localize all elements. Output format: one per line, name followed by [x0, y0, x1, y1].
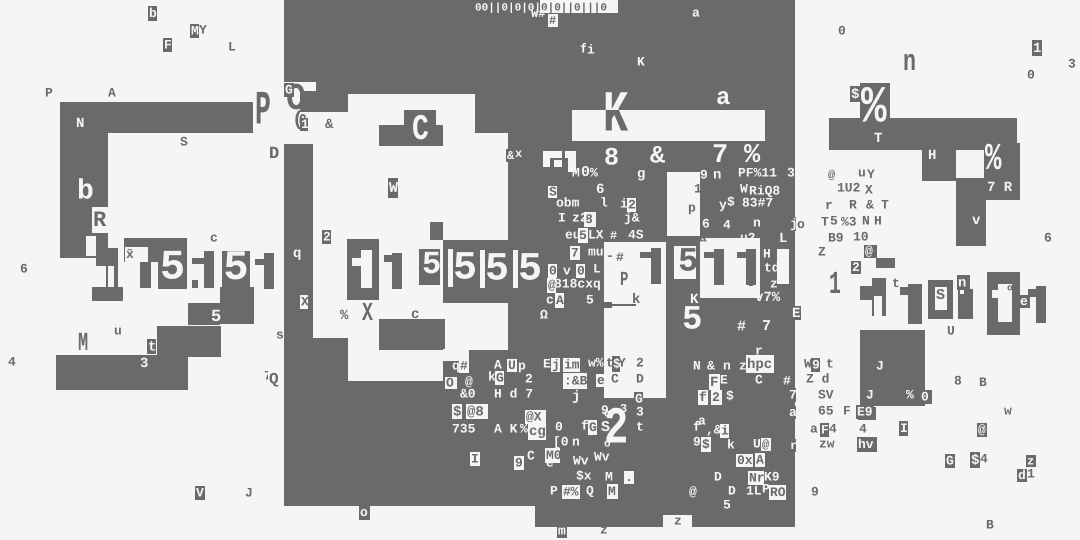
svg-text:&0: &0: [460, 387, 476, 402]
svg-text:E: E: [792, 306, 800, 322]
svg-text:W: W: [389, 180, 398, 197]
svg-text:3: 3: [787, 166, 795, 181]
svg-text:&: &: [507, 149, 515, 163]
svg-text:1: 1: [301, 117, 309, 132]
svg-text:RO: RO: [770, 485, 786, 500]
svg-text:r: r: [825, 198, 833, 213]
svg-text:Y: Y: [199, 23, 207, 38]
svg-text:W#: W#: [531, 7, 545, 21]
svg-text:7: 7: [762, 318, 771, 335]
svg-text:G: G: [285, 83, 293, 98]
svg-text:td: td: [764, 261, 780, 276]
svg-text:p: p: [688, 201, 696, 216]
svg-text:Wv: Wv: [573, 454, 589, 469]
svg-text:d: d: [1018, 468, 1026, 483]
svg-text:@: @: [828, 168, 835, 182]
svg-text:i: i: [587, 43, 595, 58]
svg-text:1: 1: [829, 266, 841, 303]
svg-text:Z d: Z d: [806, 372, 829, 387]
svg-text:cg: cg: [529, 424, 546, 440]
svg-text:5: 5: [485, 247, 509, 292]
svg-text:Q: Q: [269, 371, 279, 389]
svg-text:o: o: [604, 438, 611, 450]
svg-text:H: H: [874, 214, 882, 229]
svg-text:I: I: [558, 211, 566, 226]
svg-text:K: K: [637, 55, 645, 70]
svg-text:u: u: [114, 324, 122, 339]
svg-text:7: 7: [571, 246, 579, 261]
svg-text:b: b: [149, 6, 157, 21]
svg-text:i: i: [620, 197, 628, 212]
svg-text:2: 2: [852, 260, 860, 275]
svg-text:e: e: [597, 373, 605, 388]
svg-text:n: n: [903, 46, 916, 80]
svg-text:5: 5: [453, 246, 477, 291]
svg-text:L: L: [228, 40, 236, 55]
svg-text:5: 5: [518, 247, 542, 292]
svg-text:Wv: Wv: [594, 450, 610, 465]
svg-text:4: 4: [859, 422, 867, 437]
svg-text:j: j: [552, 358, 560, 373]
svg-text:@: @: [762, 438, 769, 452]
svg-text:@: @: [689, 485, 697, 500]
svg-text:3: 3: [1068, 57, 1076, 72]
svg-text:F: F: [843, 404, 851, 419]
svg-text:k: k: [727, 438, 735, 453]
svg-text:a: a: [810, 422, 818, 437]
svg-text:W: W: [804, 357, 812, 372]
svg-text:b: b: [77, 177, 94, 208]
svg-text:&: &: [650, 142, 665, 171]
svg-text:M: M: [191, 24, 199, 39]
svg-text:G: G: [946, 454, 954, 469]
svg-text:j&: j&: [624, 211, 640, 226]
svg-text:P: P: [762, 482, 770, 497]
svg-text:A: A: [494, 358, 502, 373]
svg-text:$: $: [971, 453, 979, 469]
svg-text:9: 9: [812, 358, 820, 373]
svg-text:k: k: [632, 292, 640, 308]
svg-text:4: 4: [8, 355, 16, 370]
svg-text:#: #: [783, 374, 791, 389]
svg-text:S: S: [601, 419, 610, 436]
svg-text:J: J: [866, 388, 874, 403]
svg-text:X: X: [362, 298, 373, 328]
svg-text:10: 10: [853, 230, 869, 245]
svg-text:c: c: [210, 231, 218, 246]
svg-text:c: c: [411, 307, 419, 323]
svg-text:#: #: [549, 14, 556, 28]
svg-text:3: 3: [140, 356, 148, 372]
svg-text:5: 5: [682, 301, 702, 339]
svg-text:5: 5: [160, 243, 185, 291]
svg-text:83#7: 83#7: [742, 196, 773, 211]
svg-text:%: %: [520, 422, 528, 437]
svg-text:$x: $x: [576, 469, 592, 484]
svg-text:%3: %3: [841, 215, 857, 230]
svg-text:4: 4: [829, 422, 837, 437]
svg-text:5: 5: [586, 293, 594, 308]
svg-text:Z: Z: [818, 245, 826, 260]
svg-text:S: S: [936, 287, 945, 304]
svg-text:v: v: [972, 213, 981, 229]
svg-text:9: 9: [700, 168, 708, 183]
svg-text:%: %: [340, 308, 349, 324]
svg-text:@: @: [865, 244, 873, 259]
svg-text:5: 5: [579, 228, 587, 243]
svg-text:F: F: [821, 423, 829, 438]
svg-text:2: 2: [525, 372, 533, 387]
svg-text:W: W: [740, 182, 748, 197]
svg-text:z: z: [572, 211, 580, 226]
svg-text:e: e: [546, 456, 554, 471]
svg-text:T: T: [881, 198, 889, 213]
svg-text:$: $: [702, 437, 710, 452]
svg-text:E: E: [720, 373, 728, 388]
svg-text:E: E: [543, 357, 551, 372]
svg-text:q: q: [452, 359, 460, 374]
svg-text:y: y: [719, 198, 727, 213]
svg-text:5: 5: [678, 243, 698, 281]
svg-text:L: L: [779, 231, 787, 247]
svg-text:@: @: [978, 423, 986, 438]
svg-text:I: I: [471, 452, 479, 467]
svg-text::&B: :&B: [564, 374, 588, 389]
svg-text:n: n: [572, 435, 580, 450]
svg-text:Y: Y: [618, 356, 626, 371]
svg-text:C: C: [611, 372, 619, 387]
svg-text:q: q: [293, 246, 301, 262]
svg-text:4S: 4S: [628, 228, 644, 243]
svg-text:t: t: [892, 276, 900, 291]
svg-text:H: H: [763, 247, 771, 262]
svg-text:c: c: [546, 293, 554, 308]
svg-text:C: C: [412, 109, 429, 150]
svg-text:j: j: [572, 389, 580, 405]
svg-text:m: m: [558, 524, 566, 539]
svg-text:C: C: [527, 449, 535, 464]
svg-text:4: 4: [980, 452, 988, 467]
svg-text:735: 735: [452, 422, 476, 437]
svg-text:%: %: [590, 166, 598, 181]
svg-text:P: P: [255, 85, 271, 139]
svg-text:E9: E9: [857, 405, 873, 420]
svg-text:a: a: [716, 85, 730, 112]
svg-text:0|0||0|||0: 0|0||0|||0: [541, 2, 607, 14]
svg-text:x: x: [515, 147, 522, 161]
svg-text:T: T: [821, 215, 829, 230]
svg-text:N: N: [693, 359, 701, 374]
svg-text:n: n: [753, 216, 761, 231]
svg-text:u: u: [858, 166, 866, 181]
svg-text:-: -: [606, 249, 614, 264]
svg-text:x̃: x̃: [126, 247, 134, 262]
svg-text:B: B: [979, 375, 987, 390]
svg-text:P: P: [620, 269, 628, 292]
svg-text:0x: 0x: [737, 453, 753, 468]
svg-text:G: G: [589, 420, 597, 435]
svg-text:U: U: [508, 358, 516, 373]
svg-text:f: f: [699, 390, 707, 405]
svg-text:7: 7: [789, 388, 797, 403]
svg-text:e: e: [1020, 294, 1028, 309]
svg-text:z: z: [739, 359, 747, 374]
svg-text:P: P: [45, 86, 53, 101]
svg-text:º: º: [1006, 284, 1014, 299]
svg-text:2: 2: [712, 390, 720, 405]
svg-text:R: R: [93, 208, 107, 233]
svg-text:mu: mu: [588, 245, 604, 260]
svg-text:D: D: [714, 470, 722, 485]
svg-text:B: B: [986, 518, 994, 533]
svg-text:SV: SV: [818, 388, 834, 403]
svg-text:A: A: [556, 293, 564, 308]
svg-text:9: 9: [693, 435, 701, 450]
svg-text:D: D: [636, 372, 644, 387]
svg-text:4: 4: [723, 218, 731, 233]
svg-text:F: F: [164, 38, 172, 53]
svg-text:z: z: [600, 523, 608, 538]
svg-text:818cxq: 818cxq: [554, 277, 601, 292]
svg-text:U: U: [753, 437, 761, 452]
svg-text:#: #: [616, 250, 624, 265]
svg-text:z: z: [674, 514, 682, 529]
svg-text:Ω: Ω: [540, 308, 548, 323]
svg-text:9: 9: [515, 456, 523, 471]
svg-text:X: X: [301, 295, 309, 310]
svg-text:H d 7: H d 7: [494, 387, 533, 402]
svg-text:1: 1: [694, 182, 702, 197]
svg-text:#: #: [737, 319, 746, 336]
svg-text:N: N: [76, 116, 84, 132]
svg-text:a: a: [692, 6, 700, 21]
svg-text:7: 7: [712, 141, 728, 171]
svg-text:hpc: hpc: [747, 357, 772, 373]
svg-text:3: 3: [636, 405, 644, 420]
svg-text:M: M: [608, 484, 616, 499]
svg-text:o: o: [360, 505, 368, 520]
svg-text:$: $: [727, 195, 735, 210]
svg-text:t: t: [826, 357, 834, 372]
svg-text:A K: A K: [494, 422, 518, 437]
svg-text:i: i: [721, 424, 729, 439]
svg-text:B9: B9: [828, 231, 844, 246]
svg-text:n: n: [713, 167, 721, 183]
svg-text:R: R: [849, 198, 857, 213]
svg-text:D: D: [728, 484, 736, 499]
svg-text:t: t: [636, 420, 644, 435]
svg-text:5: 5: [223, 244, 248, 292]
svg-text:M: M: [78, 328, 88, 358]
svg-text:A: A: [756, 453, 764, 468]
svg-text:%: %: [861, 78, 887, 137]
svg-text:#%: #%: [563, 485, 579, 500]
svg-text:P: P: [550, 484, 558, 499]
svg-text:$: $: [453, 404, 461, 420]
svg-text:8: 8: [604, 144, 619, 173]
svg-text:&: &: [866, 198, 874, 213]
svg-text:.: .: [625, 470, 633, 485]
svg-text:PF%11: PF%11: [738, 166, 777, 181]
svg-text:1: 1: [1027, 467, 1035, 482]
svg-text:$: $: [726, 389, 734, 404]
svg-text:6: 6: [1044, 231, 1052, 246]
svg-text:J: J: [245, 486, 253, 501]
svg-text:5: 5: [830, 214, 838, 229]
svg-text:H: H: [928, 148, 936, 164]
svg-text:1L: 1L: [746, 484, 762, 499]
svg-text:n: n: [723, 359, 731, 374]
svg-text:65: 65: [818, 404, 834, 419]
svg-text:D: D: [269, 145, 279, 164]
svg-text:I: I: [900, 421, 908, 436]
svg-text:C: C: [755, 373, 763, 388]
svg-text:w: w: [1004, 404, 1012, 419]
svg-text:N: N: [862, 214, 870, 229]
svg-text:0: 0: [921, 390, 929, 405]
svg-text:f: f: [581, 419, 589, 434]
svg-text:o: o: [797, 217, 805, 232]
svg-text:l: l: [600, 196, 608, 211]
svg-text:0: 0: [838, 24, 846, 39]
svg-text:5: 5: [211, 308, 221, 327]
svg-text:7 R: 7 R: [987, 180, 1013, 196]
svg-text:8: 8: [954, 374, 962, 389]
svg-text:r: r: [790, 439, 797, 453]
svg-text:$: $: [851, 87, 859, 103]
svg-text:9: 9: [811, 485, 819, 500]
svg-text:F: F: [710, 375, 718, 391]
svg-text:a: a: [699, 231, 707, 246]
svg-text:zw: zw: [819, 437, 835, 452]
svg-text:M: M: [605, 470, 613, 485]
svg-text:5: 5: [422, 246, 441, 283]
svg-text:U: U: [947, 324, 955, 339]
svg-text:J: J: [876, 359, 884, 374]
svg-text:,&: ,&: [706, 423, 722, 438]
svg-text:a: a: [698, 414, 706, 429]
svg-text:5: 5: [723, 498, 731, 513]
svg-text:&: &: [325, 117, 334, 133]
svg-text:L: L: [593, 262, 601, 277]
svg-text:a: a: [789, 405, 797, 420]
svg-text:s: s: [276, 328, 284, 343]
svg-text:hv: hv: [858, 437, 874, 452]
svg-text:0: 0: [1027, 68, 1035, 83]
svg-text:LX: LX: [588, 228, 604, 243]
svg-text:im: im: [564, 358, 580, 373]
svg-text:@8: @8: [467, 404, 484, 420]
svg-text:#: #: [610, 229, 617, 243]
svg-text:Q: Q: [586, 484, 594, 499]
svg-text:1U2: 1U2: [837, 181, 861, 196]
svg-text:6: 6: [20, 262, 28, 277]
svg-text:S: S: [180, 135, 188, 150]
svg-text:%: %: [906, 388, 914, 403]
svg-text:#: #: [460, 359, 468, 374]
svg-text:u2: u2: [740, 231, 756, 246]
svg-text:v7%: v7%: [755, 290, 781, 306]
svg-text:M: M: [572, 166, 580, 181]
svg-text:&: &: [707, 359, 715, 374]
svg-text:%: %: [985, 138, 1002, 181]
svg-text:6: 6: [702, 217, 710, 232]
svg-text:G: G: [496, 371, 504, 386]
svg-text:Y: Y: [867, 167, 875, 182]
svg-text:1: 1: [1033, 41, 1041, 57]
svg-text:g: g: [637, 166, 645, 182]
svg-text:T: T: [874, 131, 882, 147]
svg-text:w%: w%: [588, 356, 604, 371]
svg-text:2: 2: [636, 356, 644, 371]
svg-text:z: z: [770, 277, 778, 292]
svg-text:obm: obm: [556, 196, 580, 211]
svg-text:O: O: [446, 376, 454, 391]
svg-text:V: V: [196, 486, 204, 501]
svg-text:0: 0: [581, 164, 590, 181]
svg-text:t: t: [148, 339, 156, 355]
svg-text:X: X: [865, 183, 873, 198]
svg-text:2: 2: [580, 211, 588, 226]
svg-text:0: 0: [555, 420, 563, 435]
svg-text:2: 2: [323, 230, 331, 245]
svg-text:A: A: [108, 86, 116, 101]
